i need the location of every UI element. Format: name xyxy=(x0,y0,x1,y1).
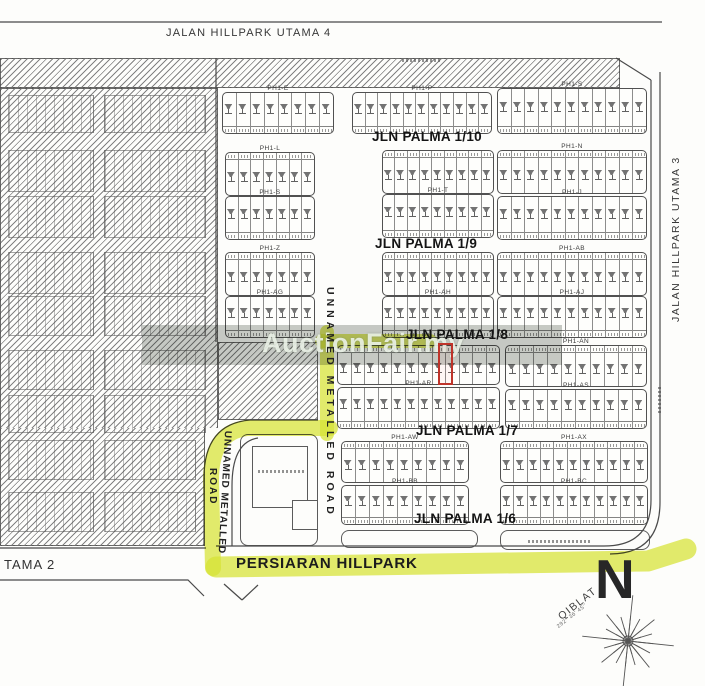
block-label: PH1-P xyxy=(411,85,432,92)
lot-cell xyxy=(635,486,647,524)
unit-plan-symbol xyxy=(553,272,563,283)
unit-plan-symbol xyxy=(227,272,237,283)
unit-plan-symbol xyxy=(430,104,440,115)
lot-cell xyxy=(525,151,539,193)
unit-plan-symbol xyxy=(522,400,532,411)
unit-plan-symbol xyxy=(417,104,427,115)
block-label: PH1-J xyxy=(562,189,582,196)
unit-plan-symbol xyxy=(442,104,452,115)
unit-plan-symbol xyxy=(344,460,354,471)
unit-plan-symbol xyxy=(594,102,604,113)
block-label: PH1-S xyxy=(259,189,280,196)
unit-plan-symbol xyxy=(567,170,577,181)
lot-cell xyxy=(606,89,620,133)
lot-cell xyxy=(378,93,391,133)
unit-plan-symbol xyxy=(594,170,604,181)
street-label-jln-palma-1-8: JLN PALMA 1/8 xyxy=(406,327,508,342)
unit-plan-symbol xyxy=(482,272,492,283)
lot-cell xyxy=(265,93,279,133)
unit-plan-symbol xyxy=(240,308,250,319)
unit-plan-symbol xyxy=(468,104,478,115)
unit-plan-symbol xyxy=(636,496,646,507)
unit-plan-symbol xyxy=(366,104,376,115)
unit-plan-symbol xyxy=(396,207,406,218)
lot-cell xyxy=(566,151,580,193)
lot-cell xyxy=(633,197,646,239)
unit-plan-symbol xyxy=(458,170,468,181)
lot-cell xyxy=(290,253,303,295)
unit-plan-symbol xyxy=(564,364,574,375)
lot-cell xyxy=(591,346,605,386)
unit-plan-symbol xyxy=(428,496,438,507)
unit-plan-symbol xyxy=(290,308,300,319)
unit-plan-symbol xyxy=(622,496,632,507)
lot-cell xyxy=(512,253,526,295)
unit-plan-symbol xyxy=(596,460,606,471)
lot-cell xyxy=(579,297,593,337)
lot-cell xyxy=(420,195,432,237)
unit-plan-symbol xyxy=(540,209,550,220)
unit-plan-symbol xyxy=(240,172,250,183)
housing-block: PH1-BC xyxy=(500,485,648,525)
unit-plan-symbol xyxy=(594,272,604,283)
lot-cell xyxy=(419,388,433,428)
unit-plan-symbol xyxy=(608,170,618,181)
unit-plan-symbol xyxy=(384,207,394,218)
unit-plan-symbol xyxy=(582,460,592,471)
unit-plan-symbol xyxy=(433,207,443,218)
site-plan-map: PH1-EPH1-LPH1-SPH1-ZPH1-AGPH1-PPH1-TPH1-… xyxy=(0,0,705,686)
lot-cell xyxy=(566,197,580,239)
block-label: PH1-AX xyxy=(561,434,587,441)
block-label: PH1-AB xyxy=(559,245,585,252)
unit-plan-symbol xyxy=(303,172,313,183)
unit-plan-symbol xyxy=(526,308,536,319)
unit-plan-symbol xyxy=(252,172,262,183)
unit-plan-symbol xyxy=(224,104,234,115)
lot-cell xyxy=(579,89,593,133)
unit-plan-symbol xyxy=(414,496,424,507)
lot-cell xyxy=(482,253,493,295)
lot-cell xyxy=(408,151,420,193)
lot-cell xyxy=(383,195,395,237)
lot-cell xyxy=(441,442,455,482)
unit-plan-symbol xyxy=(502,496,512,507)
unit-plan-symbol xyxy=(556,496,566,507)
unit-plan-symbol xyxy=(414,460,424,471)
unit-plan-symbol xyxy=(594,209,604,220)
lot-cell xyxy=(498,197,512,239)
lot-cell xyxy=(353,93,366,133)
lot-cell xyxy=(593,253,607,295)
lot-cell xyxy=(606,197,620,239)
block-label: PH1-AJ xyxy=(560,289,585,296)
unit-plan-symbol xyxy=(482,170,492,181)
unit-plan-symbol xyxy=(621,308,631,319)
lot-cell xyxy=(469,151,481,193)
unit-plan-symbol xyxy=(513,102,523,113)
unit-plan-symbol xyxy=(592,400,602,411)
unit-plan-symbol xyxy=(608,102,618,113)
unit-plan-symbol xyxy=(294,104,304,115)
unit-plan-symbol xyxy=(526,272,536,283)
unit-plan-symbol xyxy=(408,272,418,283)
lot-cell xyxy=(237,93,251,133)
unit-plan-symbol xyxy=(372,460,382,471)
lot-cell xyxy=(576,390,590,428)
unit-plan-symbol xyxy=(606,364,616,375)
lot-cell xyxy=(383,253,395,295)
lot-cell xyxy=(342,442,356,482)
unit-plan-symbol xyxy=(433,170,443,181)
lot-cell xyxy=(619,346,633,386)
illegible-annotation xyxy=(258,470,306,473)
lot-cell xyxy=(633,253,646,295)
block-label: PH1-BC xyxy=(561,478,587,485)
unit-plan-symbol xyxy=(252,104,262,115)
unit-plan-symbol xyxy=(581,308,591,319)
lot-cell xyxy=(290,197,303,239)
lot-cell xyxy=(365,388,379,428)
road-label-jalan-hillpark-utama-3: JALAN HILLPARK UTAMA 3 xyxy=(670,156,682,322)
unit-plan-symbol xyxy=(513,272,523,283)
unit-plan-symbol xyxy=(303,272,313,283)
lot-cell xyxy=(408,253,420,295)
unit-plan-symbol xyxy=(553,209,563,220)
lot-cell xyxy=(239,153,252,195)
block-label: PH1-AR xyxy=(405,380,431,387)
unit-plan-symbol xyxy=(290,209,300,220)
unit-plan-symbol xyxy=(386,460,396,471)
lot-cell xyxy=(342,486,356,524)
unit-plan-symbol xyxy=(408,207,418,218)
unit-plan-symbol xyxy=(488,399,498,410)
unit-plan-symbol xyxy=(278,172,288,183)
unit-plan-symbol xyxy=(458,207,468,218)
unit-plan-symbol xyxy=(442,496,452,507)
lot-cell xyxy=(338,388,352,428)
unit-plan-symbol xyxy=(227,308,237,319)
lot-cell xyxy=(520,390,534,428)
unit-plan-symbol xyxy=(594,308,604,319)
unit-plan-symbol xyxy=(396,170,406,181)
lot-cell xyxy=(512,151,526,193)
lot-cell xyxy=(223,93,237,133)
unit-plan-symbol xyxy=(529,460,539,471)
unit-plan-symbol xyxy=(265,272,275,283)
unit-plan-symbol xyxy=(358,496,368,507)
unit-plan-symbol xyxy=(516,496,526,507)
lot-cell xyxy=(593,197,607,239)
unit-plan-symbol xyxy=(366,399,376,410)
housing-block: PH1-AX xyxy=(500,441,648,483)
lot-cell xyxy=(498,253,512,295)
lot-cell xyxy=(633,390,646,428)
unit-plan-symbol xyxy=(380,399,390,410)
unit-plan-symbol xyxy=(303,308,313,319)
lot-cell xyxy=(279,93,293,133)
unit-plan-symbol xyxy=(354,104,364,115)
block-label: PH1-AH xyxy=(425,289,451,296)
lot-cell xyxy=(482,151,493,193)
lot-cell xyxy=(356,442,370,482)
housing-block: PH1-P xyxy=(352,92,492,134)
unit-plan-symbol xyxy=(379,104,389,115)
lot-cell xyxy=(446,388,460,428)
lot-cell xyxy=(552,151,566,193)
street-label-jln-palma-1-7: JLN PALMA 1/7 xyxy=(416,423,518,438)
unit-plan-symbol xyxy=(252,308,262,319)
lot-cell xyxy=(226,153,239,195)
unit-plan-symbol xyxy=(609,496,619,507)
lot-cell xyxy=(620,253,634,295)
lot-cell xyxy=(251,93,265,133)
unit-plan-symbol xyxy=(621,102,631,113)
lot-cell xyxy=(251,197,264,239)
block-label: PH1-N xyxy=(561,143,583,150)
unit-plan-symbol xyxy=(252,272,262,283)
illegible-annotation xyxy=(402,59,442,62)
unit-plan-symbol xyxy=(445,308,455,319)
unit-plan-symbol xyxy=(635,170,645,181)
lot-cell xyxy=(635,442,647,482)
lot-cell xyxy=(525,197,539,239)
housing-block: PH1-T xyxy=(382,194,494,238)
lot-cell xyxy=(455,442,468,482)
lot-cell xyxy=(391,93,404,133)
unit-plan-symbol xyxy=(252,209,262,220)
unit-plan-symbol xyxy=(447,399,457,410)
unit-plan-symbol xyxy=(421,272,431,283)
lot-cell xyxy=(605,346,619,386)
lot-cell xyxy=(433,388,447,428)
lot-cell xyxy=(441,93,454,133)
road-label-unnamed-metalled-road-right: UNNAMED METALLED ROAD xyxy=(324,287,336,518)
unit-plan-symbol xyxy=(240,272,250,283)
housing-block: PH1-S xyxy=(497,88,647,134)
unit-plan-symbol xyxy=(592,364,602,375)
lot-cell xyxy=(469,253,481,295)
unit-plan-symbol xyxy=(404,104,414,115)
unit-plan-symbol xyxy=(384,308,394,319)
unit-plan-symbol xyxy=(227,172,237,183)
lot-cell xyxy=(514,442,527,482)
lot-cell xyxy=(581,486,594,524)
housing-block: PH1-J xyxy=(497,196,647,240)
lot-cell xyxy=(454,93,467,133)
street-label-jln-palma-1-9: JLN PALMA 1/9 xyxy=(375,236,477,251)
unit-plan-symbol xyxy=(621,272,631,283)
unit-plan-symbol xyxy=(621,170,631,181)
street-label-jln-palma-1-10: JLN PALMA 1/10 xyxy=(372,129,482,144)
unit-plan-symbol xyxy=(461,399,471,410)
unit-plan-symbol xyxy=(308,104,318,115)
unit-plan-symbol xyxy=(445,170,455,181)
lot-cell xyxy=(408,195,420,237)
unit-plan-symbol xyxy=(578,364,588,375)
unit-plan-symbol xyxy=(433,308,443,319)
lot-cell xyxy=(512,89,526,133)
lot-cell xyxy=(413,442,427,482)
bottom-strip-left xyxy=(341,530,478,548)
unit-plan-symbol xyxy=(609,460,619,471)
block-label: PH1-AW xyxy=(391,434,418,441)
lot-cell xyxy=(576,346,590,386)
unit-plan-symbol xyxy=(516,460,526,471)
lot-cell xyxy=(292,93,306,133)
unit-plan-symbol xyxy=(569,496,579,507)
lot-cell xyxy=(541,486,554,524)
unit-plan-symbol xyxy=(567,272,577,283)
unit-plan-symbol xyxy=(407,399,417,410)
unit-plan-symbol xyxy=(550,364,560,375)
lot-cell xyxy=(554,442,567,482)
lot-cell xyxy=(445,195,457,237)
unit-plan-symbol xyxy=(513,170,523,181)
road-label-unnamed-metalled-left-line2: ROAD xyxy=(207,468,218,505)
lot-cell xyxy=(306,93,320,133)
unit-plan-symbol xyxy=(470,170,480,181)
lot-cell xyxy=(566,297,580,337)
lot-cell xyxy=(501,442,514,482)
unit-plan-symbol xyxy=(482,308,492,319)
lot-cell xyxy=(606,151,620,193)
unit-plan-symbol xyxy=(408,170,418,181)
unit-plan-symbol xyxy=(513,308,523,319)
unit-plan-symbol xyxy=(508,400,518,411)
lot-cell xyxy=(528,486,541,524)
unit-plan-symbol xyxy=(265,172,275,183)
lot-cell xyxy=(605,390,619,428)
unit-plan-symbol xyxy=(567,209,577,220)
unit-plan-symbol xyxy=(569,460,579,471)
unit-plan-symbol xyxy=(266,104,276,115)
unit-plan-symbol xyxy=(458,272,468,283)
lot-cell xyxy=(370,486,384,524)
unit-plan-symbol xyxy=(392,104,402,115)
lot-cell xyxy=(534,390,548,428)
unit-plan-symbol xyxy=(582,496,592,507)
unit-plan-symbol xyxy=(499,272,509,283)
lot-cell xyxy=(427,442,441,482)
unit-plan-symbol xyxy=(290,172,300,183)
lot-cell xyxy=(579,197,593,239)
lot-cell xyxy=(498,89,512,133)
unit-plan-symbol xyxy=(353,399,363,410)
lot-cell xyxy=(593,89,607,133)
unit-plan-symbol xyxy=(526,170,536,181)
unit-plan-symbol xyxy=(529,496,539,507)
street-label-jln-palma-1-6: JLN PALMA 1/6 xyxy=(414,511,516,526)
unit-plan-symbol xyxy=(421,170,431,181)
unit-plan-symbol xyxy=(393,399,403,410)
unit-plan-symbol xyxy=(396,308,406,319)
unit-plan-symbol xyxy=(280,104,290,115)
unit-plan-symbol xyxy=(265,209,275,220)
unit-plan-symbol xyxy=(540,308,550,319)
unit-plan-symbol xyxy=(502,460,512,471)
unit-plan-symbol xyxy=(553,308,563,319)
unit-plan-symbol xyxy=(456,460,466,471)
unit-plan-symbol xyxy=(550,400,560,411)
unit-plan-symbol xyxy=(596,496,606,507)
utility-inner-lot xyxy=(252,446,308,508)
lot-cell xyxy=(239,253,252,295)
unit-plan-symbol xyxy=(608,209,618,220)
unit-plan-symbol xyxy=(372,496,382,507)
housing-block: PH1-AS xyxy=(505,389,647,429)
lot-cell xyxy=(608,486,621,524)
unit-plan-symbol xyxy=(470,207,480,218)
lot-cell xyxy=(457,151,469,193)
lot-cell xyxy=(384,442,398,482)
unit-plan-symbol xyxy=(442,460,452,471)
unit-plan-symbol xyxy=(620,364,630,375)
housing-block: PH1-S xyxy=(225,196,315,240)
unit-plan-symbol xyxy=(456,496,466,507)
unit-plan-symbol xyxy=(344,496,354,507)
lot-cell xyxy=(320,93,333,133)
lot-cell xyxy=(416,93,429,133)
lot-cell xyxy=(621,486,634,524)
lot-cell xyxy=(566,89,580,133)
lot-cell xyxy=(593,297,607,337)
lot-cell xyxy=(539,197,553,239)
lot-cell xyxy=(552,197,566,239)
block-label: PH1-L xyxy=(260,145,280,152)
lot-cell xyxy=(239,197,252,239)
road-label-utama-2: TAMA 2 xyxy=(4,557,55,572)
lot-cell xyxy=(467,93,480,133)
lot-cell xyxy=(366,93,379,133)
lot-cell xyxy=(429,93,442,133)
illegible-annotation xyxy=(658,385,661,413)
unit-plan-symbol xyxy=(278,209,288,220)
subject-lot-marker xyxy=(438,343,453,385)
road-label-jalan-hillpark-utama-4: JALAN HILLPARK UTAMA 4 xyxy=(166,27,331,39)
unit-plan-symbol xyxy=(303,209,313,220)
unit-plan-symbol xyxy=(635,308,645,319)
unit-plan-symbol xyxy=(458,308,468,319)
unit-plan-symbol xyxy=(620,400,630,411)
block-label: PH1-AG xyxy=(257,289,284,296)
unit-plan-symbol xyxy=(526,209,536,220)
lot-cell xyxy=(595,442,608,482)
block-label: PH1-E xyxy=(267,85,288,92)
lot-cell xyxy=(302,253,314,295)
unit-plan-symbol xyxy=(482,207,492,218)
lot-cell xyxy=(595,486,608,524)
lot-cell xyxy=(539,151,553,193)
lot-cell xyxy=(482,195,493,237)
lot-cell xyxy=(290,153,303,195)
housing-block: PH1-N xyxy=(497,150,647,194)
lot-cell xyxy=(620,197,634,239)
block-label: PH1-S xyxy=(561,81,582,88)
unit-plan-symbol xyxy=(421,308,431,319)
unit-plan-symbol xyxy=(384,272,394,283)
block-label: PH1-T xyxy=(428,187,449,194)
lot-cell xyxy=(226,253,239,295)
lot-cell xyxy=(633,346,646,386)
lot-cell xyxy=(404,93,417,133)
unit-plan-symbol xyxy=(556,460,566,471)
unit-plan-symbol xyxy=(536,400,546,411)
unit-plan-symbol xyxy=(540,102,550,113)
unit-plan-symbol xyxy=(635,272,645,283)
unit-plan-symbol xyxy=(634,364,644,375)
unit-plan-symbol xyxy=(526,102,536,113)
